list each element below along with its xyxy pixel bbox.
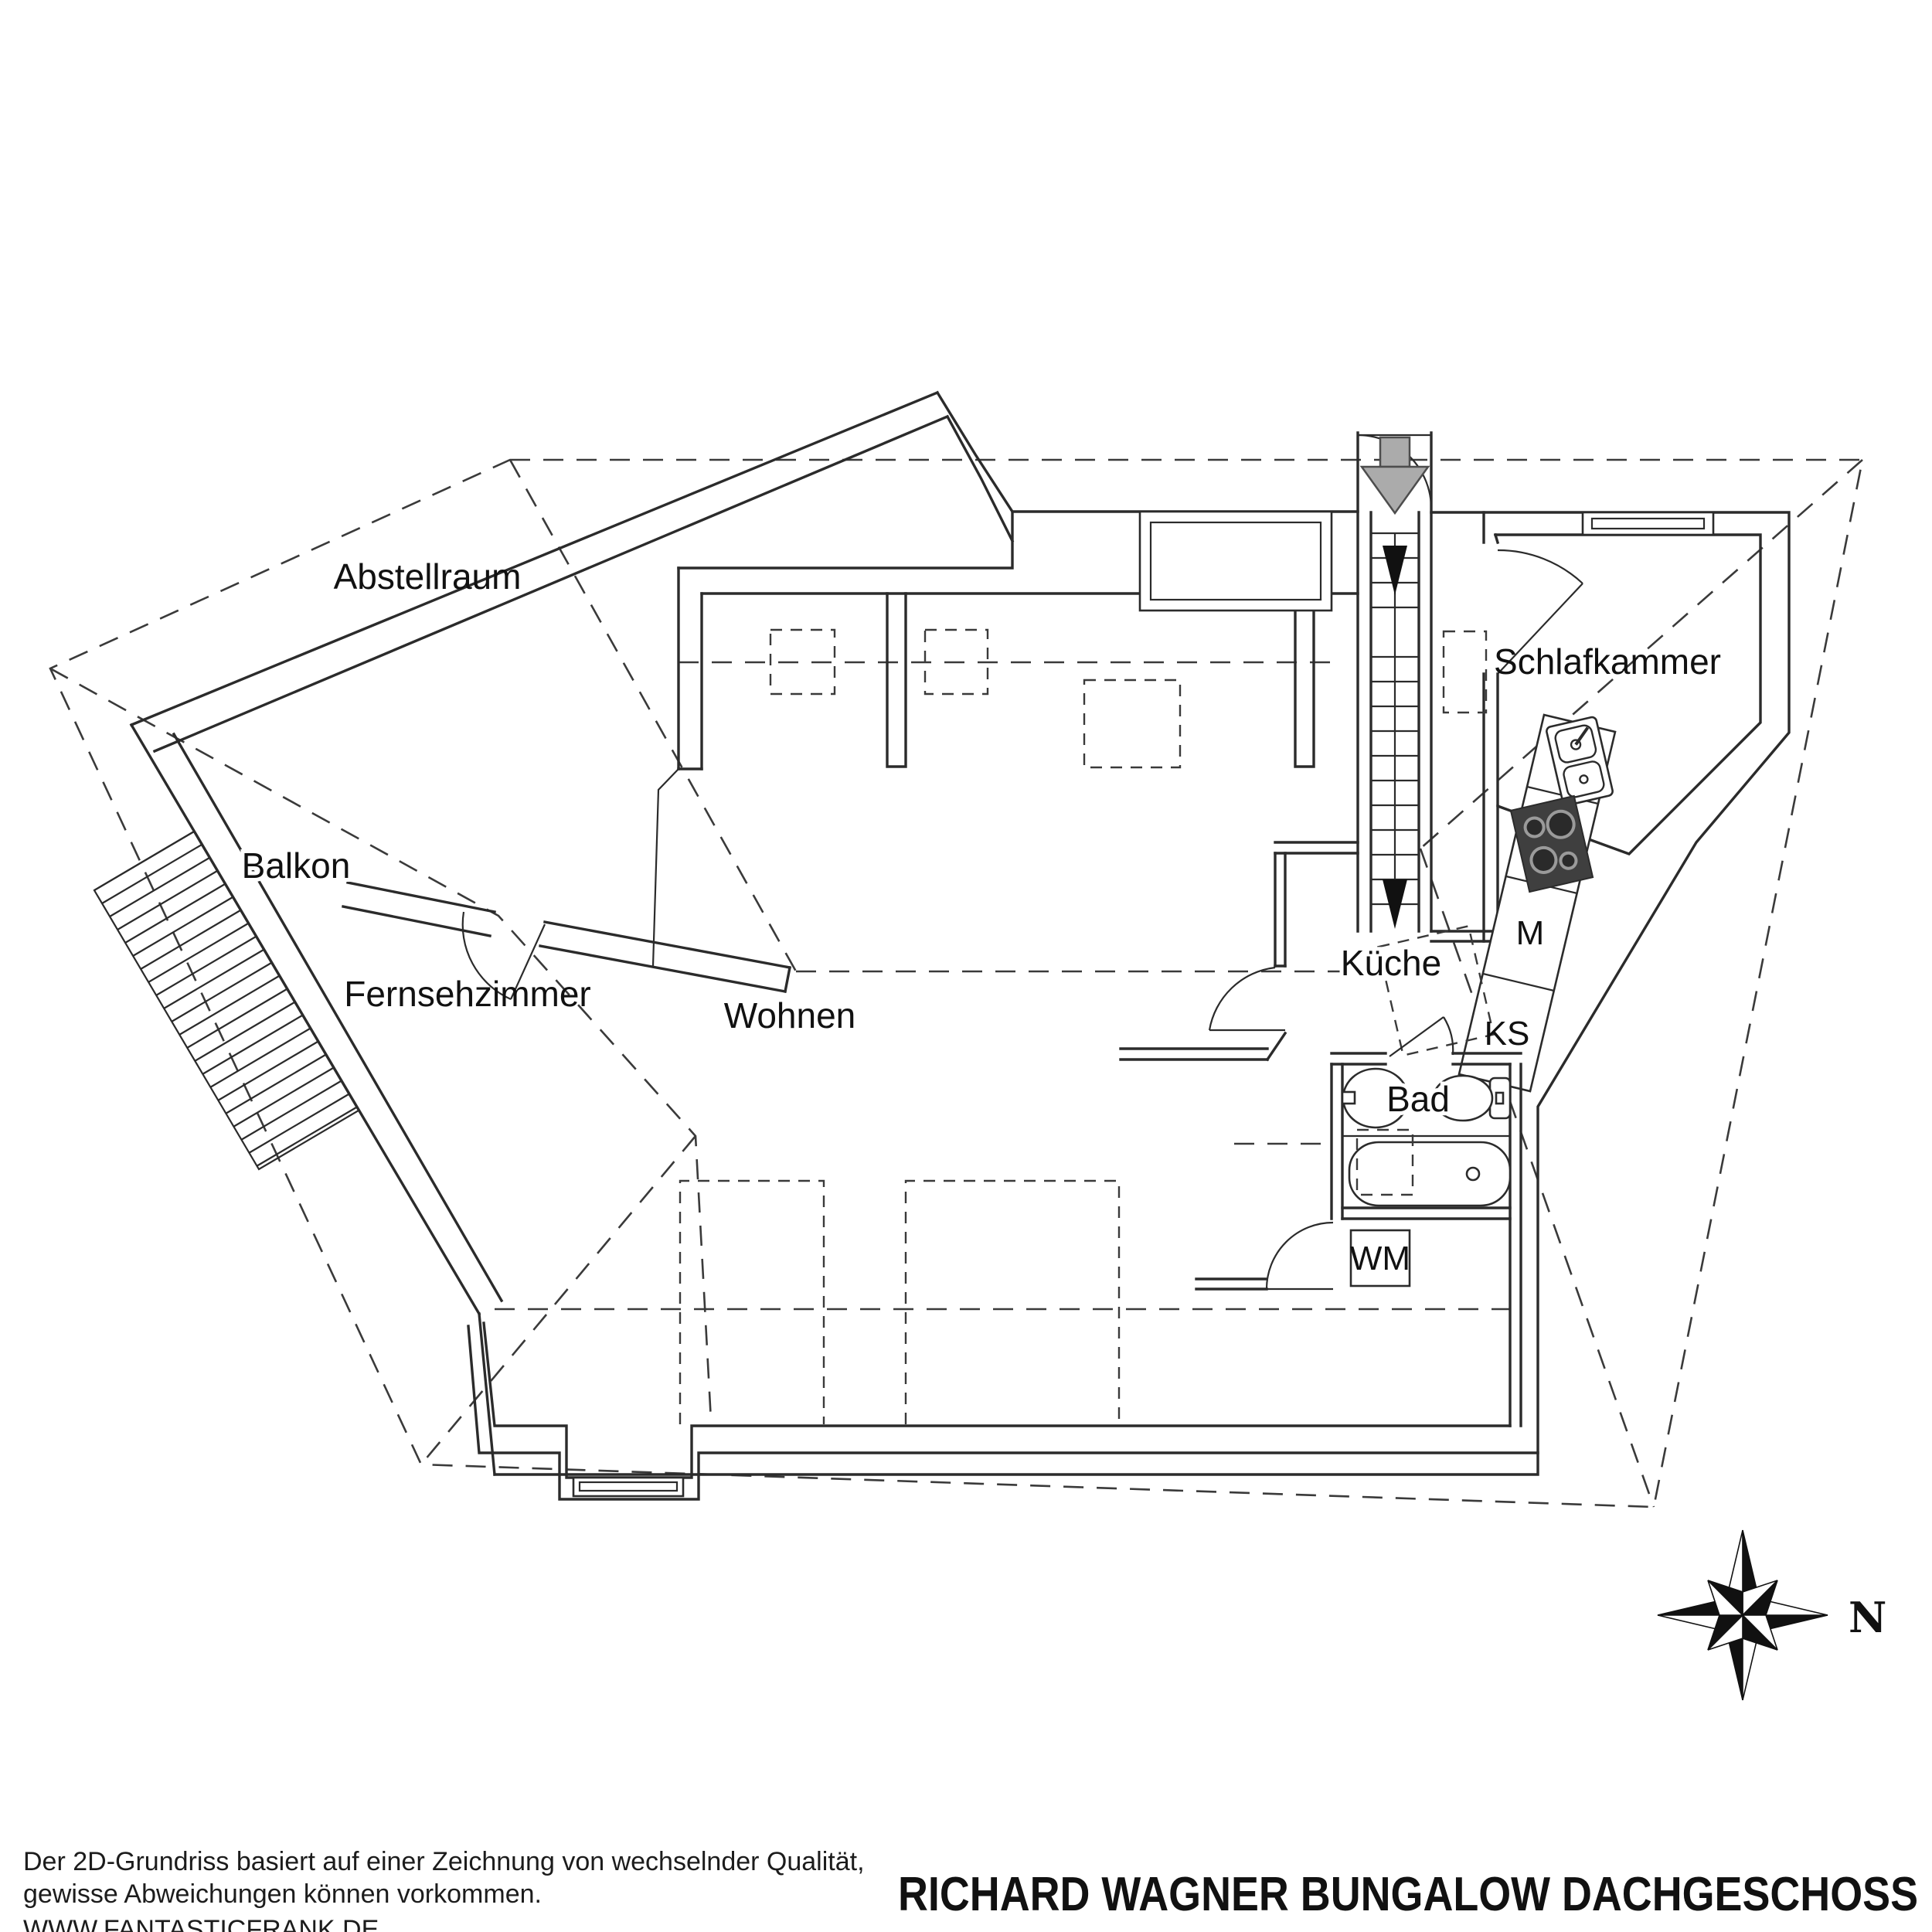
room-label-kueche: Küche — [1341, 943, 1441, 983]
bathtub-icon — [1349, 1142, 1510, 1206]
room-label-bad: Bad — [1386, 1079, 1450, 1119]
disclaimer-line-1: Der 2D-Grundriss basiert auf einer Zeich… — [23, 1847, 865, 1876]
bottom-furniture-dashed-1 — [680, 1181, 824, 1424]
schlafkammer-furniture-dashed — [1444, 631, 1486, 713]
skylights-dashed — [770, 630, 1180, 767]
bottom-wall — [468, 1181, 1538, 1499]
disclaimer-line-2: gewisse Abweichungen können vorkommen. — [23, 1879, 542, 1909]
plan-title: RICHARD WAGNER BUNGALOW DACHGESCHOSS — [898, 1868, 1918, 1921]
wing-body-junction — [653, 769, 679, 966]
laundry-door — [1267, 1223, 1333, 1289]
compass-north-label: N — [1849, 1593, 1886, 1642]
kitchen-door — [1209, 968, 1285, 1030]
room-label-fernsehzimmer: Fernsehzimmer — [344, 974, 591, 1014]
website-link[interactable]: WWW.FANTASTICFRANK.DE — [23, 1915, 379, 1932]
stair-arrow-top-icon — [1383, 546, 1407, 595]
entry-arrow-icon — [1362, 437, 1428, 513]
dormer-window — [573, 1478, 683, 1496]
partition-walls — [887, 594, 1314, 767]
entrance — [1358, 435, 1431, 513]
roof-projection-lines — [50, 460, 1862, 1507]
floorplan-sheet: Abstellraum Schlafkammer Küche Wohnen Fe… — [0, 0, 1932, 1932]
closet — [1140, 512, 1332, 611]
roof-outline — [50, 460, 1862, 1507]
footer: Der 2D-Grundriss basiert auf einer Zeich… — [23, 1847, 1918, 1932]
appliance-label-m: M — [1516, 914, 1545, 952]
compass-rose: N — [1658, 1530, 1886, 1700]
room-label-balkon: Balkon — [242, 845, 351, 886]
bathroom-door — [1389, 1017, 1453, 1056]
schlafkammer-window — [1583, 512, 1713, 535]
floorplan-drawing: Abstellraum Schlafkammer Küche Wohnen Fe… — [0, 0, 1932, 1932]
bottom-furniture-dashed-2 — [906, 1181, 1119, 1424]
appliance-label-wm: WM — [1350, 1240, 1410, 1277]
room-label-wohnen: Wohnen — [724, 995, 856, 1036]
room-label-abstellraum: Abstellraum — [334, 556, 522, 597]
room-label-schlafkammer: Schlafkammer — [1494, 641, 1721, 682]
appliance-label-ks: KS — [1485, 1015, 1530, 1053]
